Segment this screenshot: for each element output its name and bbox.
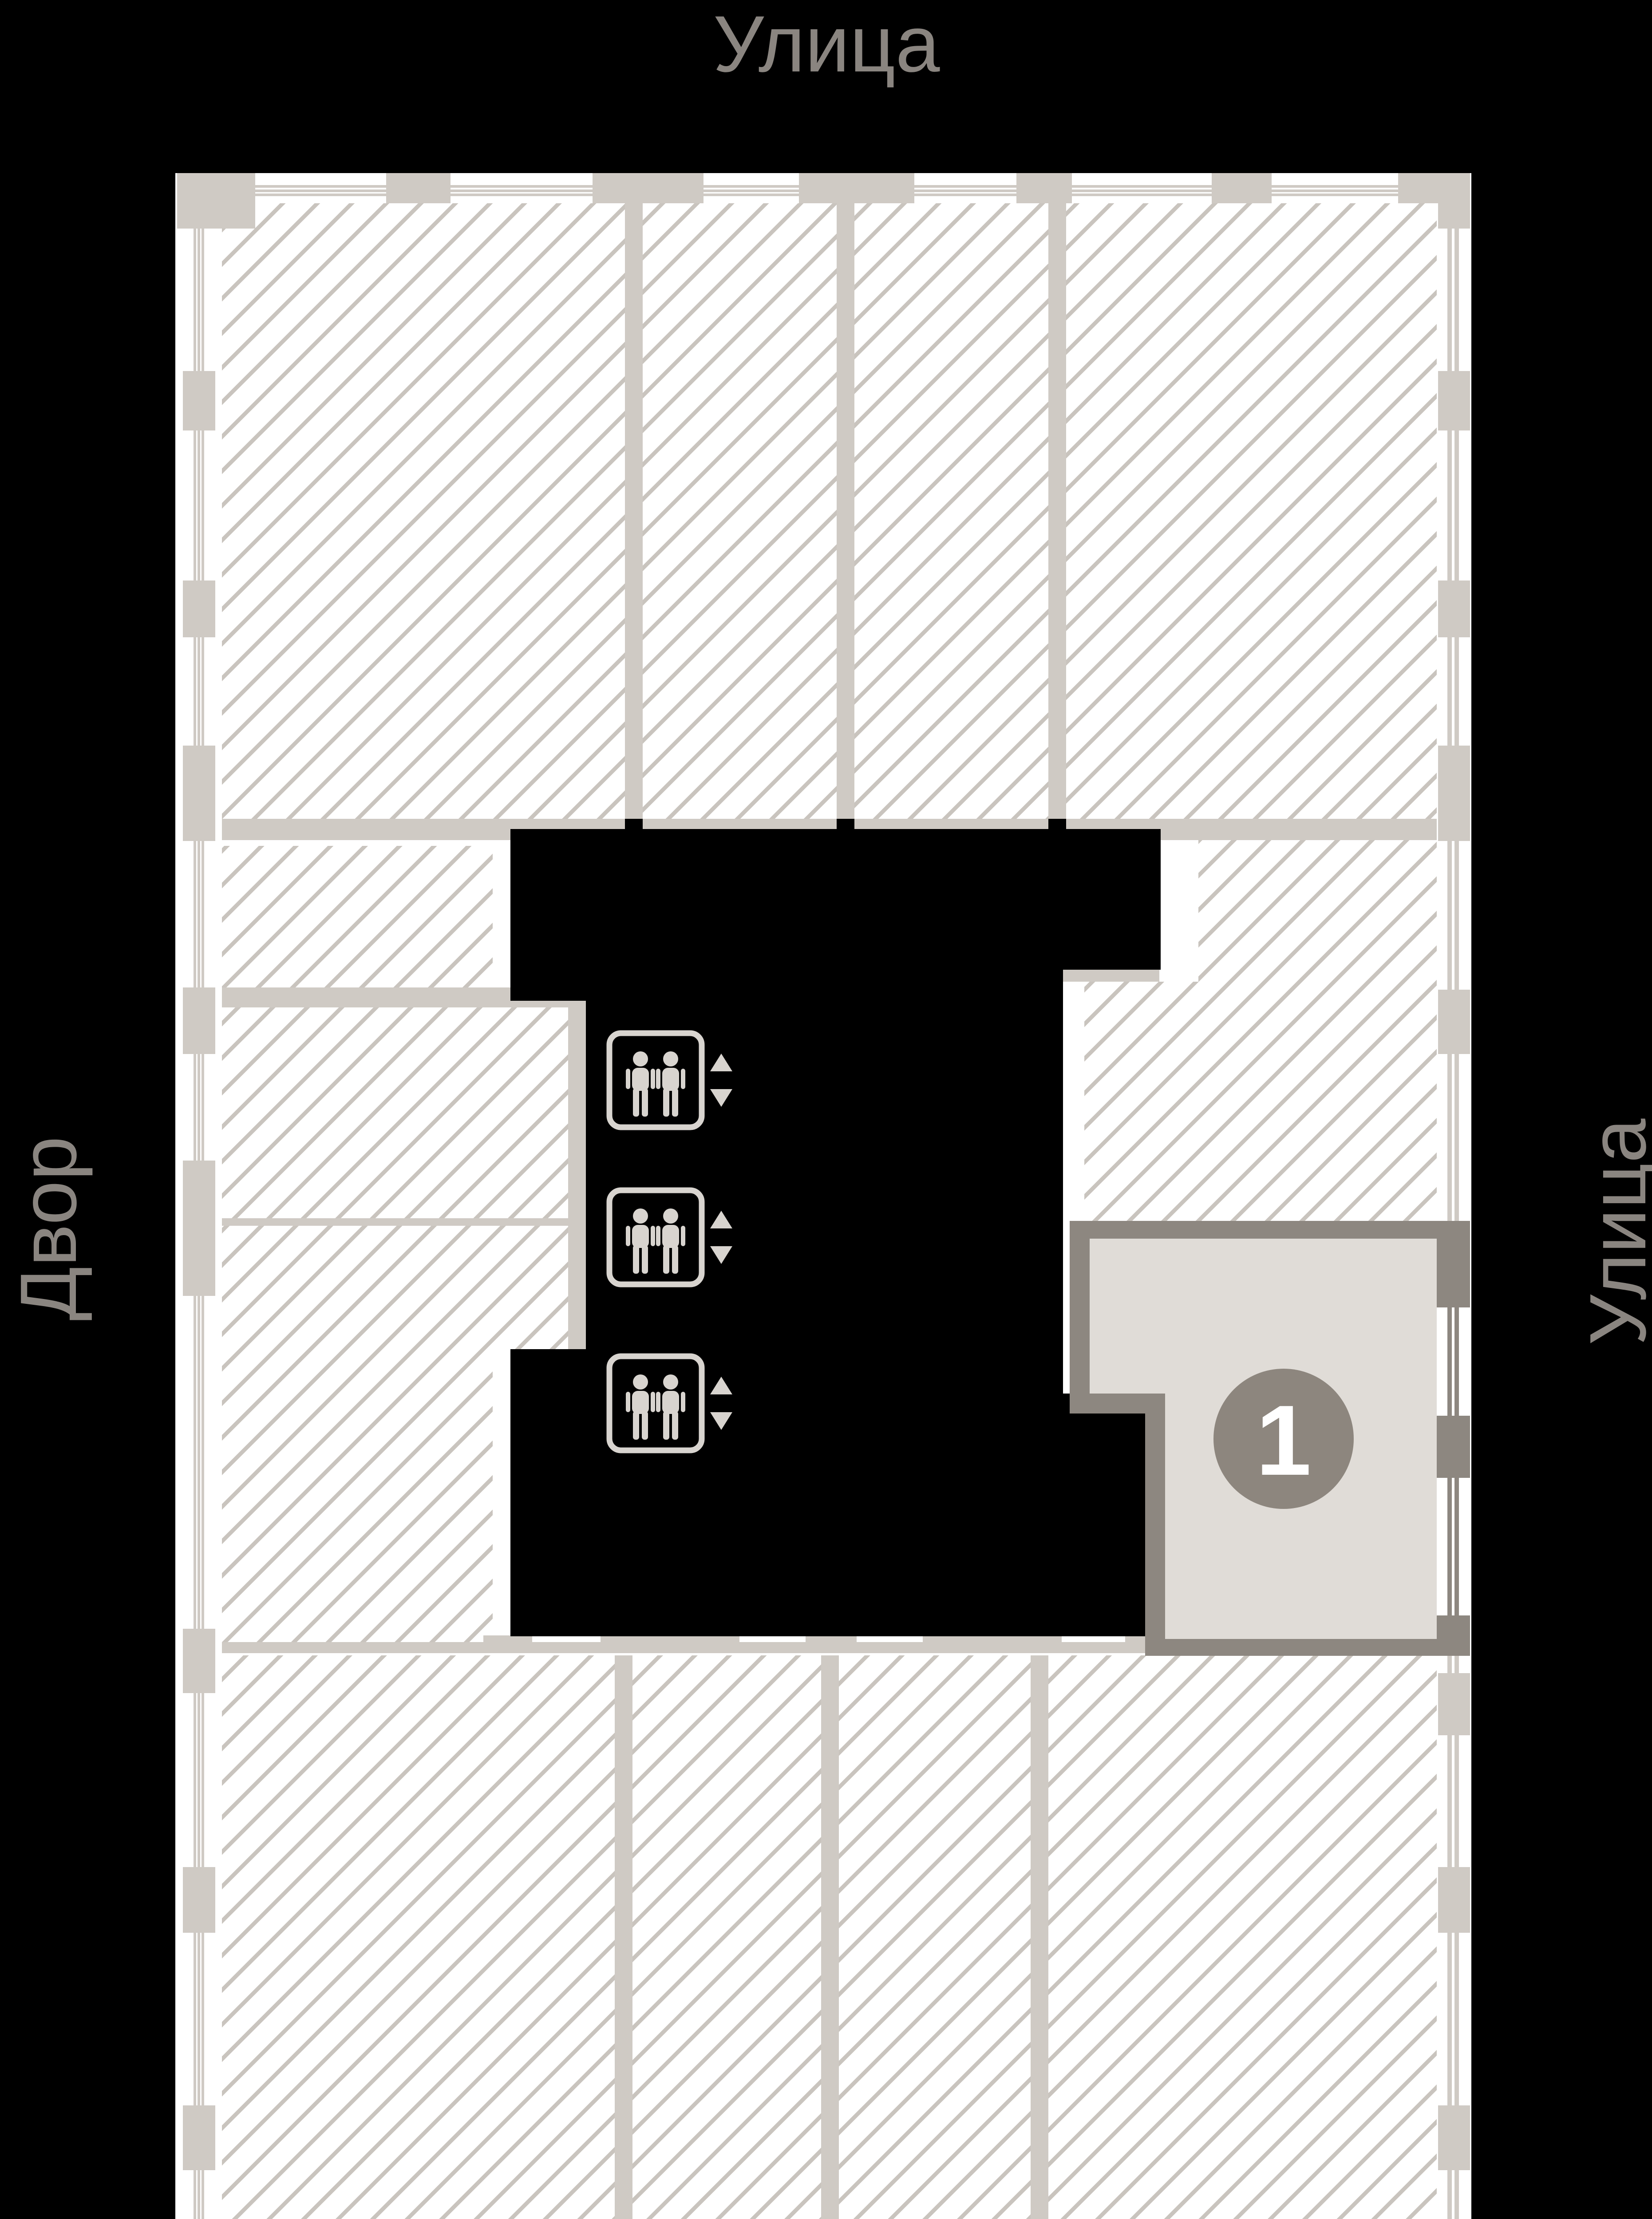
unit-top-4: [1066, 203, 1437, 820]
floor-plan: 1: [0, 0, 1652, 2219]
unit-bottom-4: [1048, 1655, 1437, 2219]
unit-top-2: [643, 203, 837, 820]
unit-bottom-3: [839, 1655, 1031, 2219]
unit-left-2: [222, 1007, 568, 1218]
unit-left-1: [222, 846, 493, 987]
unit-bottom-2: [632, 1655, 821, 2219]
unit-badge-number: 1: [1256, 1384, 1311, 1496]
unit-top-1: [222, 203, 625, 820]
unit-bottom-1: [222, 1655, 615, 2219]
unit-top-3: [854, 203, 1048, 820]
